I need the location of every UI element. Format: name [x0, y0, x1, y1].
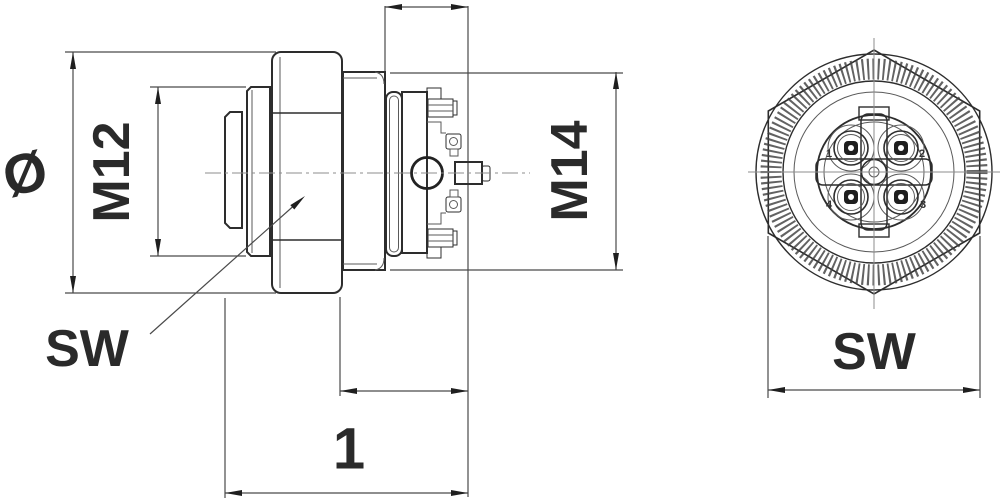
lug-top-tab [450, 149, 458, 156]
arrow [70, 276, 76, 293]
arrow [451, 388, 468, 394]
front-view: 1 2 3 4 SW [748, 38, 1000, 398]
arrow [451, 4, 468, 10]
arrow [155, 239, 161, 256]
arrow [768, 387, 785, 393]
lug-top [446, 134, 461, 149]
arrow [340, 388, 357, 394]
lug-bottom [446, 197, 461, 212]
contact-hole [848, 194, 854, 200]
solder-pin-top [428, 99, 453, 117]
arrow [225, 490, 242, 496]
contact-hole [898, 145, 904, 151]
arrow [963, 387, 980, 393]
arrow [451, 490, 468, 496]
lug-top-hole [450, 138, 458, 146]
label-diameter: Ø [0, 138, 53, 209]
arrow [613, 72, 619, 89]
washer-inner [390, 96, 399, 252]
label-m14: M14 [541, 120, 599, 221]
label-sw-side: SW [45, 320, 130, 378]
pin-number-4: 4 [826, 199, 833, 211]
lug-bottom-tab [450, 190, 458, 197]
pin-number-1: 1 [826, 148, 832, 160]
m14-thread-section [343, 72, 385, 270]
arrow [155, 87, 161, 104]
drawing-canvas: Ø M12 M14 SW 1 [0, 0, 1000, 501]
washer [386, 92, 402, 256]
pin-number-2: 2 [919, 148, 925, 160]
arrow [613, 253, 619, 270]
contact-hole [848, 145, 854, 151]
lug-bottom-hole [450, 201, 458, 209]
pin-number-3: 3 [920, 199, 926, 211]
solder-pin-top-cap [453, 101, 457, 115]
sw-leader-arrow [290, 196, 305, 210]
carrier-step-bottom [427, 247, 441, 258]
connector-technical-drawing: Ø M12 M14 SW 1 [0, 0, 1000, 501]
solder-pin-bottom [428, 229, 453, 247]
arrow [385, 4, 402, 10]
contact-2 [884, 131, 918, 165]
lug-step-top [427, 122, 446, 133]
contact-hole [898, 194, 904, 200]
label-dim-one: 1 [333, 417, 365, 482]
solder-pin-bottom-cap [453, 231, 457, 245]
contact-1 [834, 131, 868, 165]
carrier-step-top [427, 88, 441, 99]
arrow [70, 52, 76, 69]
front-tip [225, 112, 242, 228]
lug-step-bottom [427, 213, 446, 224]
label-m12: M12 [83, 121, 141, 222]
side-view: Ø M12 M14 SW 1 [0, 4, 623, 498]
label-sw-front: SW [832, 323, 917, 381]
